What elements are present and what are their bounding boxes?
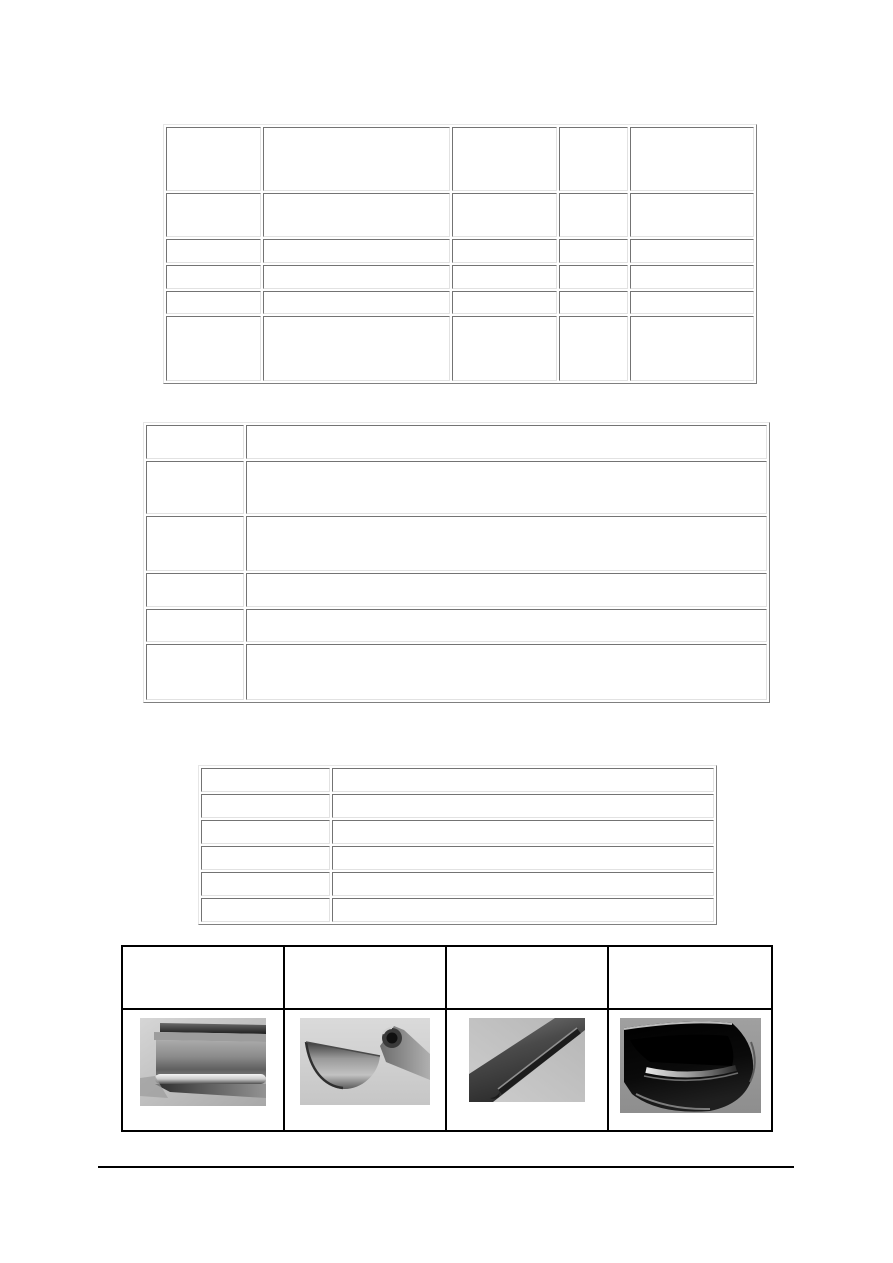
table-cell (559, 265, 628, 289)
table-row (166, 127, 754, 191)
table-row (146, 573, 767, 607)
table-cell (332, 794, 714, 818)
table-cell (559, 127, 628, 191)
table-row (146, 425, 767, 459)
photo-table-image-row (122, 1009, 772, 1131)
table-row (166, 316, 754, 381)
table-row (146, 644, 767, 700)
table-cell (630, 265, 754, 289)
table-row (201, 872, 714, 896)
table-cell (201, 846, 330, 870)
table-cell (146, 644, 244, 700)
photo-cell (284, 1009, 446, 1131)
table-cell (263, 316, 450, 381)
table-cell (246, 516, 767, 571)
table-cell (201, 794, 330, 818)
table-cell (166, 316, 261, 381)
half-round-gutter-curl-photo (300, 1018, 430, 1105)
table-cell (452, 193, 557, 237)
photo-cell (122, 1009, 284, 1131)
photo-table-header-cell (122, 946, 284, 1009)
table-row (166, 193, 754, 237)
table-cell (246, 609, 767, 642)
black-half-round-gutter-photo (620, 1018, 761, 1113)
table-cell (263, 265, 450, 289)
photo-cell (446, 1009, 608, 1131)
table-cell (630, 239, 754, 263)
table-row (166, 265, 754, 289)
table-cell (452, 316, 557, 381)
table-cell (246, 425, 767, 459)
table-cell (263, 239, 450, 263)
table-row (201, 794, 714, 818)
table-cell (146, 461, 244, 514)
table-cell (166, 193, 261, 237)
table-cell (452, 291, 557, 314)
table-cell (559, 193, 628, 237)
table-cell (332, 846, 714, 870)
table-cell (332, 820, 714, 844)
table-cell (452, 127, 557, 191)
table-cell (452, 239, 557, 263)
table-cell (263, 291, 450, 314)
gutter-photos-table (121, 945, 773, 1132)
table-cell (166, 127, 261, 191)
table-cell (201, 820, 330, 844)
table-row (201, 768, 714, 792)
table-cell (201, 898, 330, 922)
dark-angled-gutter-photo (469, 1018, 585, 1102)
table-cell (263, 127, 450, 191)
table-cell (630, 291, 754, 314)
table-cell (332, 898, 714, 922)
table-row (146, 609, 767, 642)
table-cell (201, 872, 330, 896)
table-cell (630, 316, 754, 381)
table-cell (246, 573, 767, 607)
table-cell (630, 127, 754, 191)
table-cell (559, 316, 628, 381)
table-cell (146, 516, 244, 571)
table-row (166, 239, 754, 263)
table-row (201, 820, 714, 844)
table-cell (201, 768, 330, 792)
table-cell (166, 239, 261, 263)
lower-list-table (198, 765, 717, 925)
table-cell (630, 193, 754, 237)
table-cell (559, 239, 628, 263)
table-cell (146, 573, 244, 607)
table-row (146, 461, 767, 514)
photo-cell (608, 1009, 772, 1131)
footer-rule (98, 1166, 794, 1168)
table-cell (332, 768, 714, 792)
table-cell (246, 461, 767, 514)
table-cell (263, 193, 450, 237)
table-cell (332, 872, 714, 896)
table-row (201, 846, 714, 870)
table-row (201, 898, 714, 922)
top-specs-table (163, 124, 757, 384)
table-cell (146, 609, 244, 642)
photo-table-header-cell (608, 946, 772, 1009)
table-cell (166, 265, 261, 289)
table-cell (166, 291, 261, 314)
table-cell (146, 425, 244, 459)
table-row (166, 291, 754, 314)
table-row (146, 516, 767, 571)
photo-table-header-row (122, 946, 772, 1009)
photo-table-header-cell (446, 946, 608, 1009)
box-profile-gutter-photo (140, 1018, 266, 1106)
photo-table-header-cell (284, 946, 446, 1009)
table-cell (452, 265, 557, 289)
table-cell (559, 291, 628, 314)
middle-description-table (143, 422, 770, 703)
table-cell (246, 644, 767, 700)
